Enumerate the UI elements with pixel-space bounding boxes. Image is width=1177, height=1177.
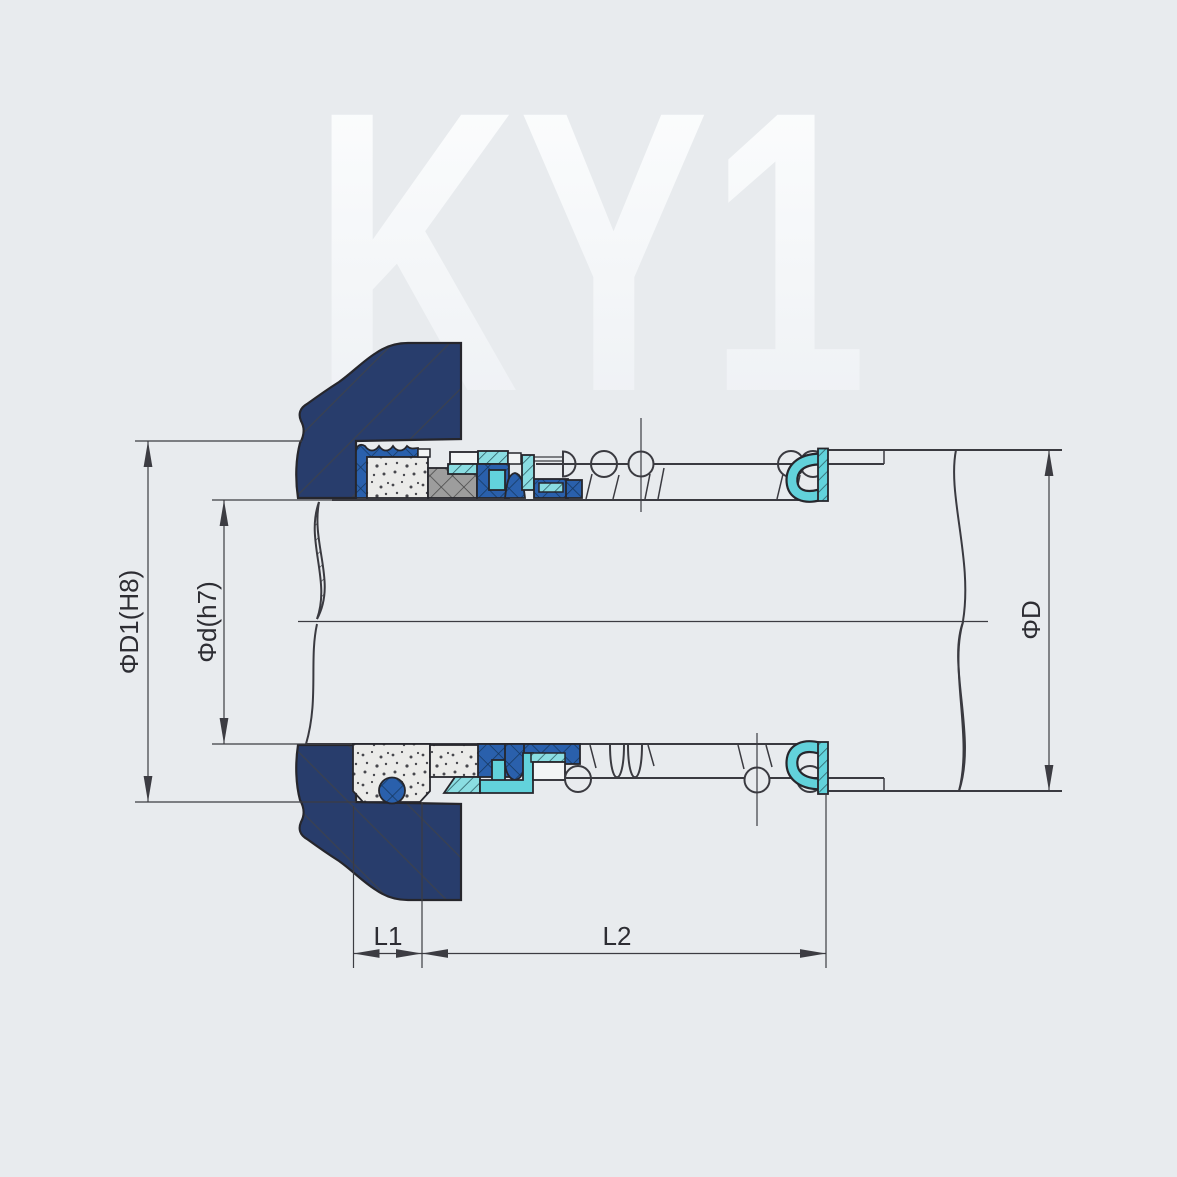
face-cap-strip-upper (450, 452, 478, 464)
bellows-window-lower (492, 760, 505, 781)
drive-box-lower (533, 762, 565, 780)
dim-label-D: ΦD (1016, 600, 1046, 640)
dim-label-l2: L2 (603, 921, 632, 951)
dim-label-l1: L1 (374, 921, 403, 951)
seat-corner-relief-upper (418, 449, 430, 457)
retainer-inset-lower (531, 753, 565, 762)
seal-drawing-page: KY1 (0, 0, 1177, 1177)
bellows-window-upper (489, 470, 505, 490)
mechanical-seal-cross-section: KY1 (0, 0, 1177, 1177)
dim-label-d1: ΦD1(H8) (114, 570, 144, 675)
o-ring-lower (379, 778, 405, 804)
seal-face-strip-upper (478, 451, 508, 464)
dim-label-d: Φd(h7) (192, 581, 222, 662)
primary-ring-lower (430, 745, 480, 777)
clamp-bar-lower (818, 742, 828, 794)
stationary-seat-ring-upper (367, 457, 428, 498)
face-band-vertical-upper (522, 455, 534, 490)
drive-cap-upper (508, 453, 521, 464)
clamp-bar-upper (818, 449, 828, 502)
bellows-convolution-lower (505, 744, 524, 780)
spring-seat-block-upper (566, 480, 582, 498)
retainer-inset-upper (539, 483, 563, 492)
